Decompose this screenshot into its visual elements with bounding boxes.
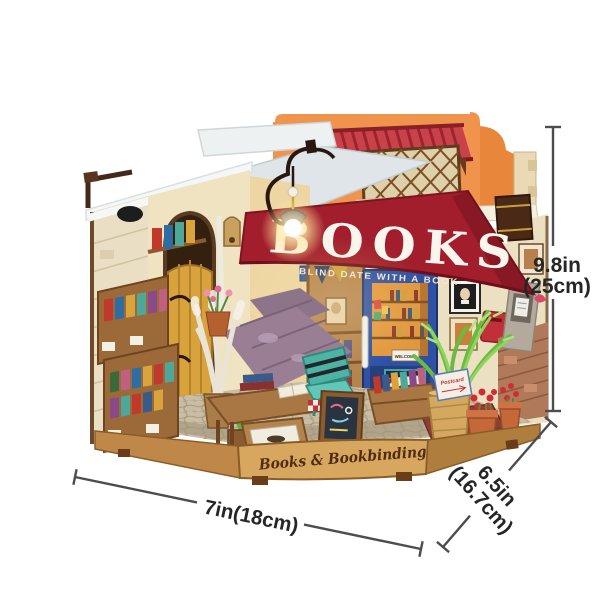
lamp-light xyxy=(284,219,302,237)
dim-height-inches: 9.8in xyxy=(533,254,581,277)
dim-width-label: 7in(18cm) xyxy=(202,496,300,538)
hat-decor xyxy=(117,206,143,222)
postcard-sign: Postcard xyxy=(434,369,472,401)
bell-icon xyxy=(229,237,235,243)
dim-height-metric: (25cm) xyxy=(523,275,591,298)
product-image: WELCOME OPEN BOOKS BLIND DATE WITH A BOO… xyxy=(0,0,600,600)
miniature-bookshop-illustration: WELCOME OPEN BOOKS BLIND DATE WITH A BOO… xyxy=(0,0,600,600)
